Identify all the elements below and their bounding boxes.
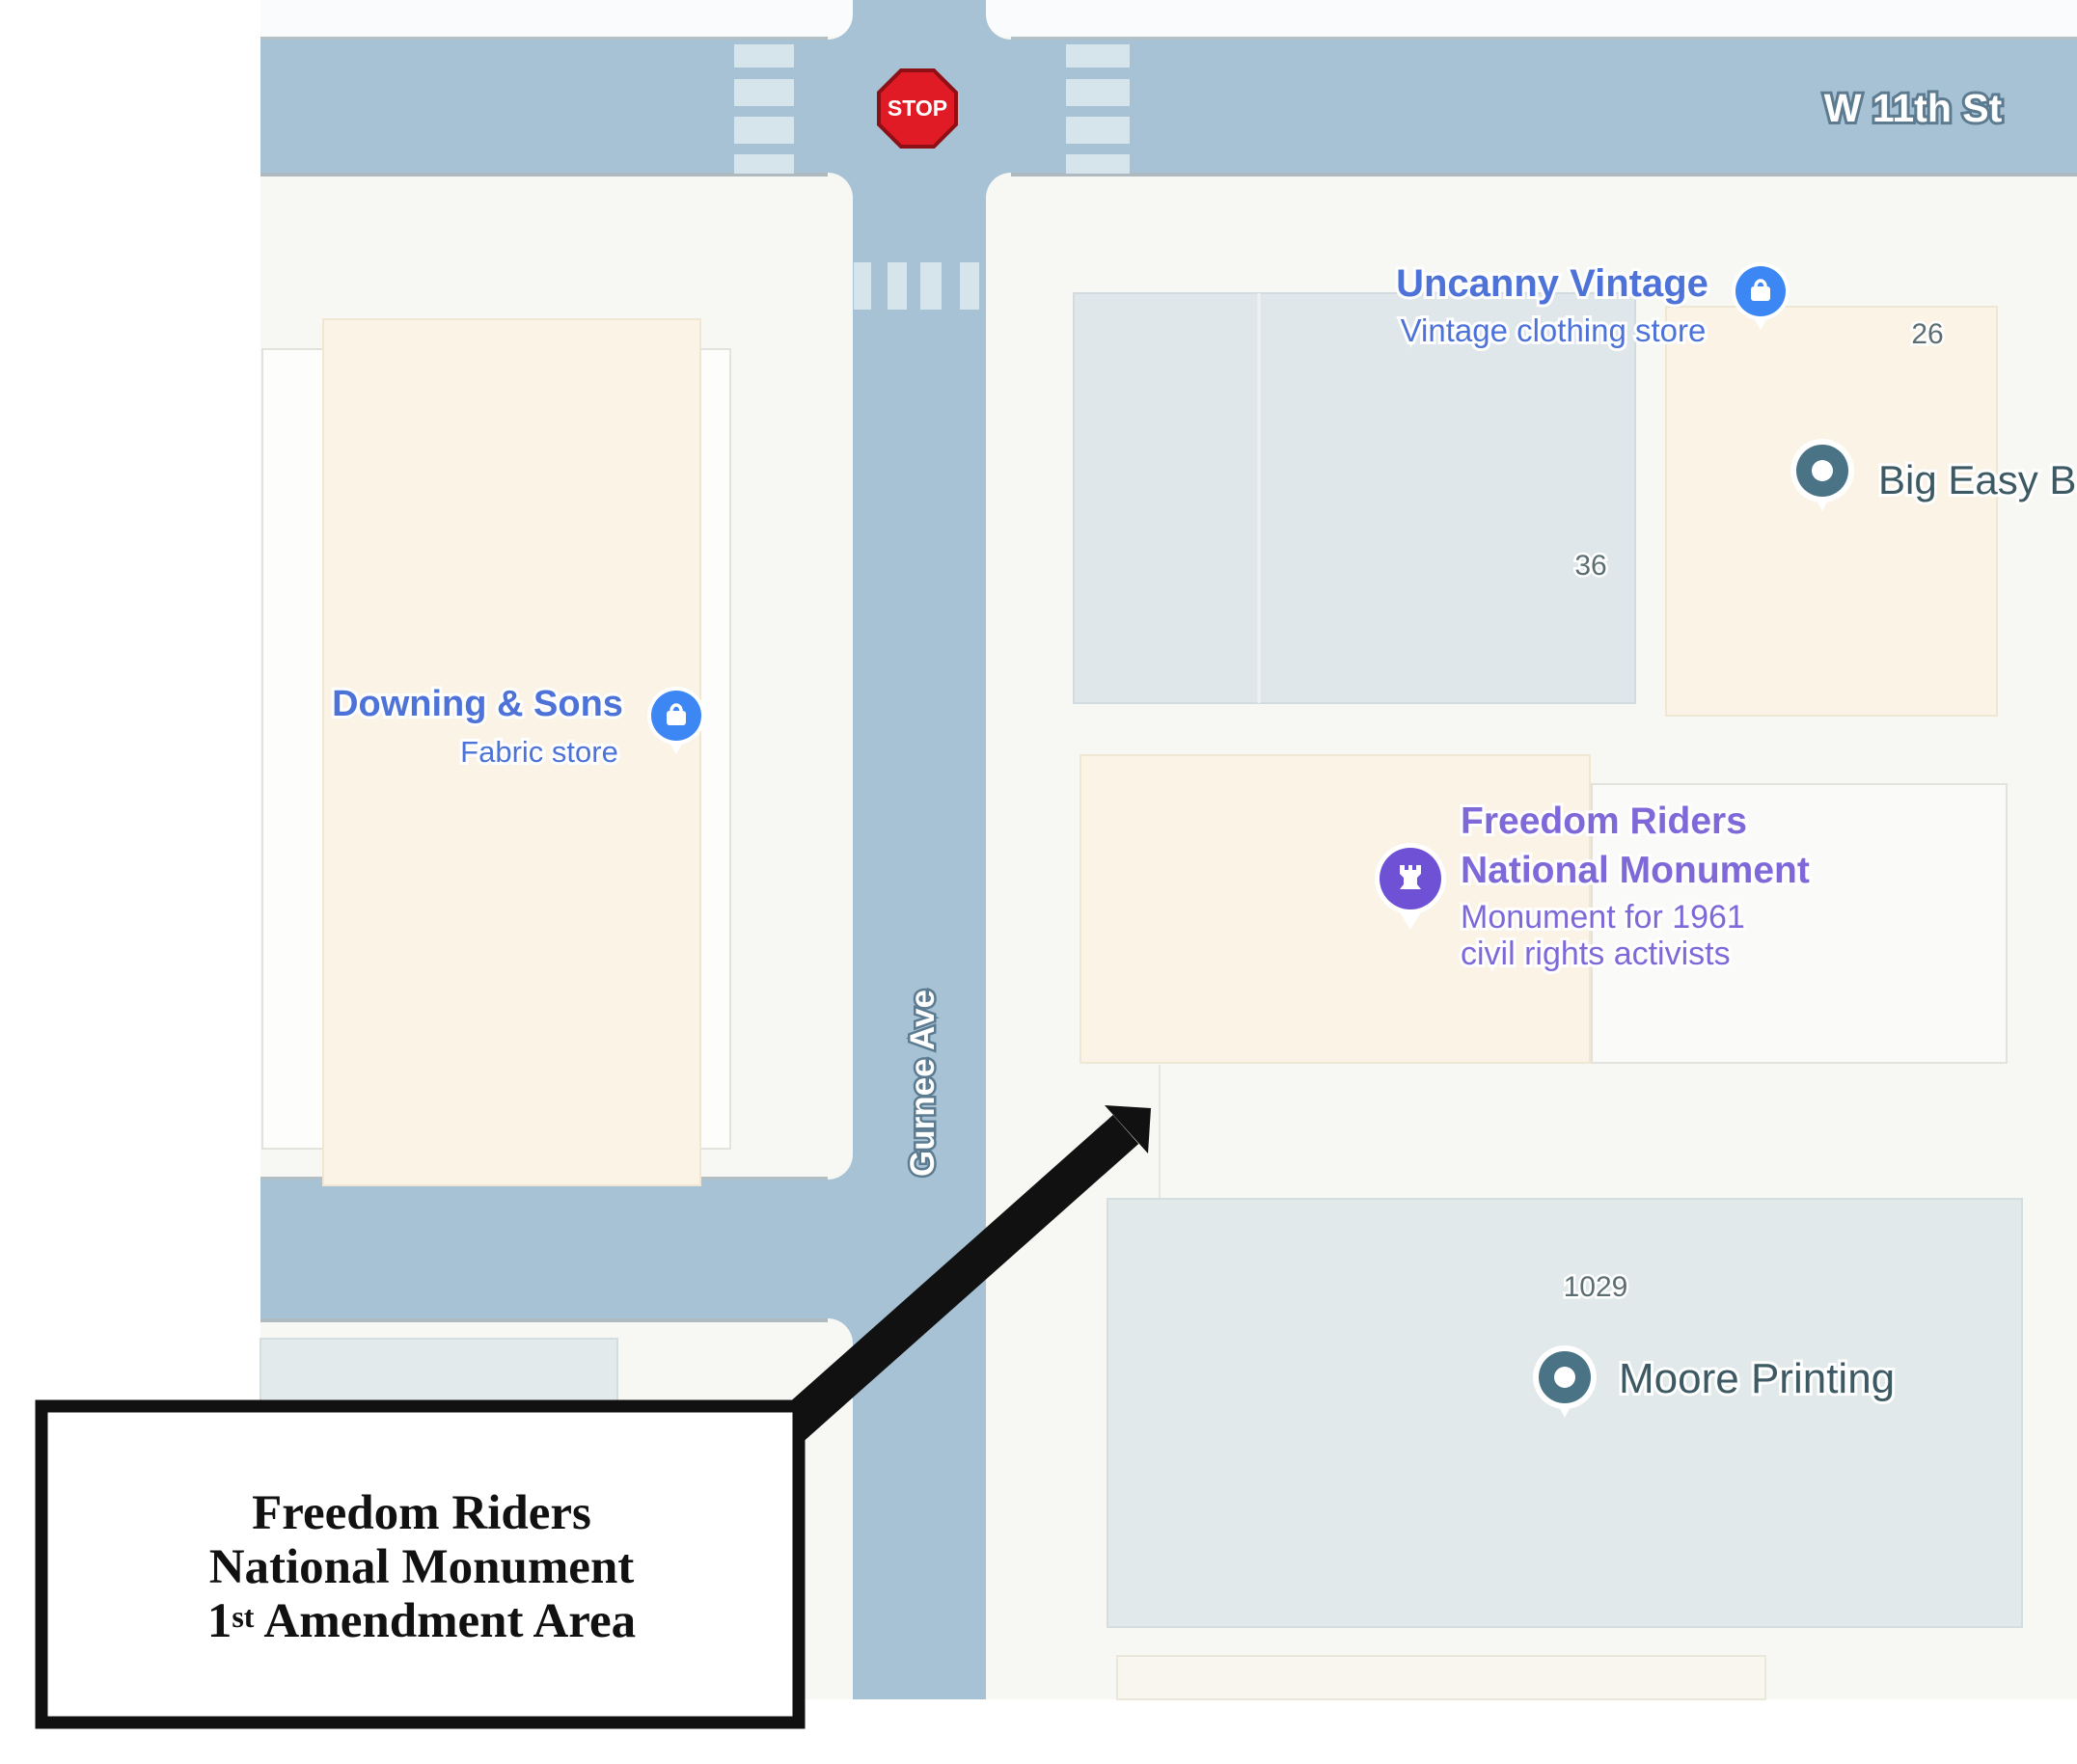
svg-text:Freedom Riders: Freedom Riders <box>1461 801 1747 842</box>
svg-text:Fabric store: Fabric store <box>460 735 618 769</box>
svg-text:36: 36 <box>1574 550 1606 582</box>
svg-text:Gurnee Ave: Gurnee Ave <box>904 990 942 1177</box>
svg-text:Monument for 1961: Monument for 1961 <box>1461 899 1745 936</box>
svg-text:civil rights activists: civil rights activists <box>1461 936 1731 972</box>
svg-text:1st Amendment Area: 1st Amendment Area <box>207 1594 636 1648</box>
svg-text:Downing & Sons: Downing & Sons <box>332 684 623 724</box>
svg-text:National Monument: National Monument <box>1461 850 1810 891</box>
svg-text:National Monument: National Monument <box>209 1540 635 1594</box>
svg-text:Vintage clothing store: Vintage clothing store <box>1401 312 1707 348</box>
svg-text:STOP: STOP <box>888 95 947 121</box>
svg-text:Freedom Riders: Freedom Riders <box>252 1486 591 1540</box>
svg-text:1029: 1029 <box>1564 1271 1628 1303</box>
svg-text:Moore Printing: Moore Printing <box>1619 1355 1895 1402</box>
svg-text:Big Easy Bar: Big Easy Bar <box>1878 457 2077 502</box>
svg-text:26: 26 <box>1911 318 1943 350</box>
svg-text:W 11th St: W 11th St <box>1824 86 2003 130</box>
svg-text:Uncanny Vintage: Uncanny Vintage <box>1396 262 1708 305</box>
